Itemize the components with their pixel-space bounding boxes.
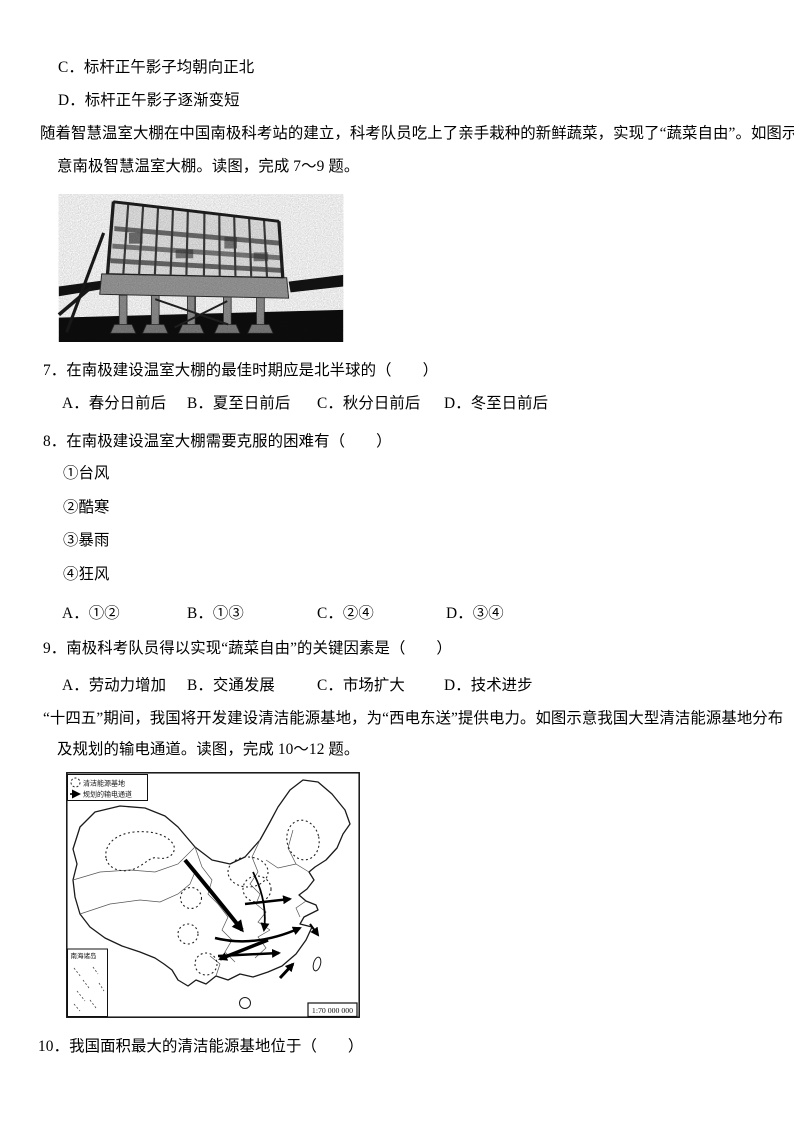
q8-item-2: ②酷寒 xyxy=(63,499,109,516)
q9-option-b: B．交通发展 xyxy=(187,677,275,694)
passage1-line2: 意南极智慧温室大棚。读图，完成 7～9 题。 xyxy=(57,158,359,175)
q8-item-4: ④狂风 xyxy=(63,566,109,583)
map-legend: 清洁能源基地 规划的输电通道 xyxy=(68,775,148,801)
q8-option-c: C．②④ xyxy=(317,605,374,622)
greenhouse-photo xyxy=(57,194,345,342)
q8-option-a: A．①② xyxy=(62,605,120,622)
q9-option-d: D．技术进步 xyxy=(444,677,533,694)
legend-base-label: 清洁能源基地 xyxy=(83,779,125,788)
prior-option-d: D．标杆正午影子逐渐变短 xyxy=(58,92,240,109)
question-8-stem: 8．在南极建设温室大棚需要克服的困难有（ ） xyxy=(43,433,392,450)
q8-option-b: B．①③ xyxy=(187,605,244,622)
map-scale: 1:70 000 000 xyxy=(308,1003,357,1017)
q7-option-b: B．夏至日前后 xyxy=(187,395,290,412)
q8-option-d: D．③④ xyxy=(446,605,504,622)
q8-item-1: ①台风 xyxy=(63,465,109,482)
map-scale-label: 1:70 000 000 xyxy=(312,1006,353,1015)
legend-channel-label: 规划的输电通道 xyxy=(83,790,132,799)
q7-option-d: D．冬至日前后 xyxy=(444,395,548,412)
prior-option-c: C．标杆正午影子均朝向正北 xyxy=(58,59,254,76)
inset-label: 南海诸岛 xyxy=(71,951,97,960)
q7-option-c: C．秋分日前后 xyxy=(317,395,420,412)
south-china-sea-inset: 南海诸岛 xyxy=(68,949,108,1017)
passage2-line2: 及规划的输电通道。读图，完成 10～12 题。 xyxy=(57,741,359,758)
china-clean-energy-map: 清洁能源基地 规划的输电通道 南海诸岛 1:70 000 000 xyxy=(66,772,360,1018)
hainan-island xyxy=(240,998,251,1009)
question-7-stem: 7．在南极建设温室大棚的最佳时期应是北半球的（ ） xyxy=(43,362,438,379)
passage1-line1: 随着智慧温室大棚在中国南极科考站的建立，科考队员吃上了亲手栽种的新鲜蔬菜，实现了… xyxy=(40,125,794,142)
question-10-stem: 10．我国面积最大的清洁能源基地位于（ ） xyxy=(38,1038,363,1055)
q8-item-3: ③暴雨 xyxy=(63,532,109,549)
question-9-stem: 9．南极科考队员得以实现“蔬菜自由”的关键因素是（ ） xyxy=(43,640,452,657)
passage2-line1: “十四五”期间，我国将开发建设清洁能源基地，为“西电东送”提供电力。如图示意我国… xyxy=(43,710,783,727)
q9-option-c: C．市场扩大 xyxy=(317,677,405,694)
q7-option-a: A．春分日前后 xyxy=(62,395,166,412)
q9-option-a: A．劳动力增加 xyxy=(62,677,166,694)
exam-page: C．标杆正午影子均朝向正北 D．标杆正午影子逐渐变短 随着智慧温室大棚在中国南极… xyxy=(0,0,794,1123)
